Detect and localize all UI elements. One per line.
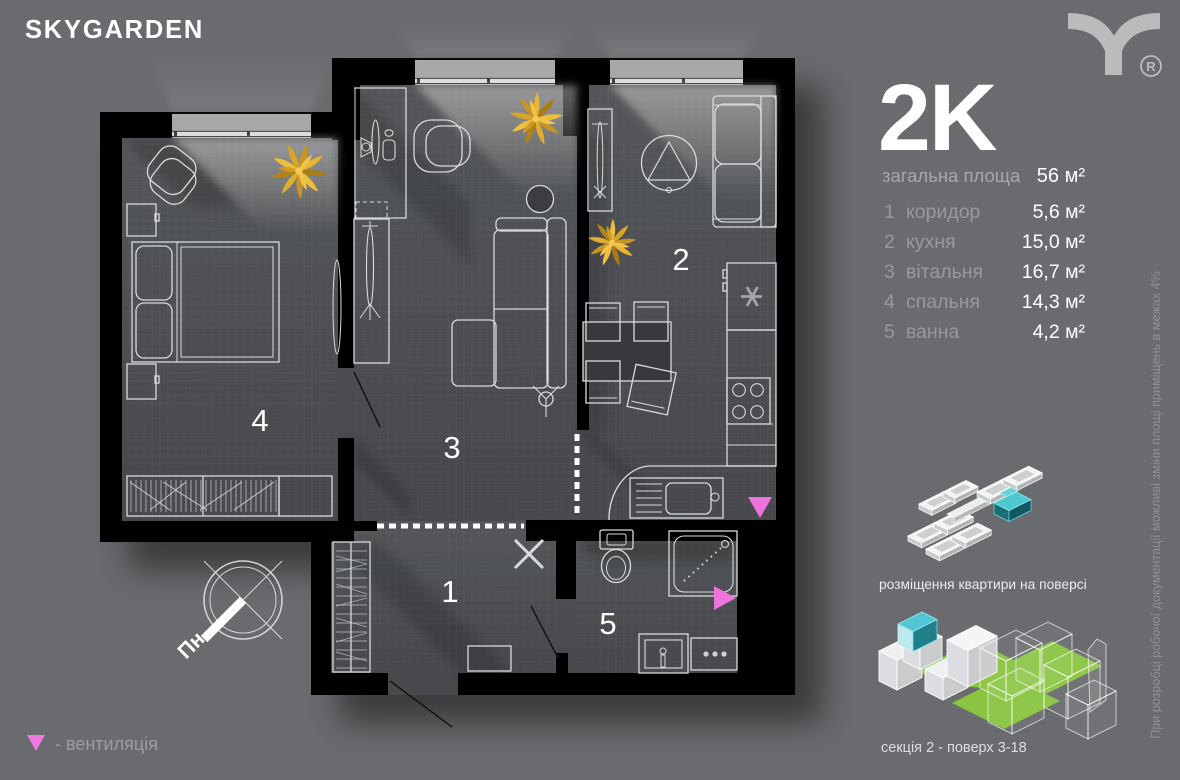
svg-text:4: 4 bbox=[251, 403, 268, 438]
svg-text:16,7 м²: 16,7 м² bbox=[1022, 261, 1086, 283]
svg-text:1: 1 bbox=[884, 201, 895, 223]
svg-text:3: 3 bbox=[884, 261, 895, 283]
svg-text:5: 5 bbox=[884, 321, 895, 343]
svg-text:розміщення квартири на поверсі: розміщення квартири на поверсі bbox=[879, 577, 1087, 592]
svg-text:коридор: коридор bbox=[906, 201, 981, 223]
svg-text:вітальня: вітальня bbox=[906, 261, 983, 283]
svg-text:2K: 2K bbox=[878, 65, 997, 171]
svg-text:5,6 м²: 5,6 м² bbox=[1033, 201, 1086, 223]
svg-text:15,0 м²: 15,0 м² bbox=[1022, 231, 1086, 253]
svg-text:загальна площа: загальна площа bbox=[882, 165, 1021, 186]
svg-text:56 м²: 56 м² bbox=[1037, 165, 1086, 187]
svg-text:ванна: ванна bbox=[906, 321, 960, 343]
svg-text:2: 2 bbox=[672, 242, 689, 277]
svg-text:4: 4 bbox=[884, 291, 895, 313]
svg-text:спальня: спальня bbox=[906, 291, 980, 313]
svg-text:5: 5 bbox=[599, 606, 616, 641]
svg-text:R: R bbox=[1146, 59, 1156, 74]
svg-text:14,3 м²: 14,3 м² bbox=[1022, 291, 1086, 313]
svg-text:- вентиляція: - вентиляція bbox=[55, 734, 158, 754]
svg-text:2: 2 bbox=[884, 231, 895, 253]
svg-text:SKYGARDEN: SKYGARDEN bbox=[25, 16, 204, 44]
svg-text:4,2 м²: 4,2 м² bbox=[1033, 321, 1086, 343]
svg-text:кухня: кухня bbox=[906, 231, 956, 253]
svg-text:3: 3 bbox=[443, 430, 460, 465]
svg-text:При розробці робочої документа: При розробці робочої документації можлив… bbox=[1149, 271, 1163, 739]
svg-text:1: 1 bbox=[441, 574, 458, 609]
svg-text:секція 2 - поверх 3-18: секція 2 - поверх 3-18 bbox=[881, 740, 1027, 756]
